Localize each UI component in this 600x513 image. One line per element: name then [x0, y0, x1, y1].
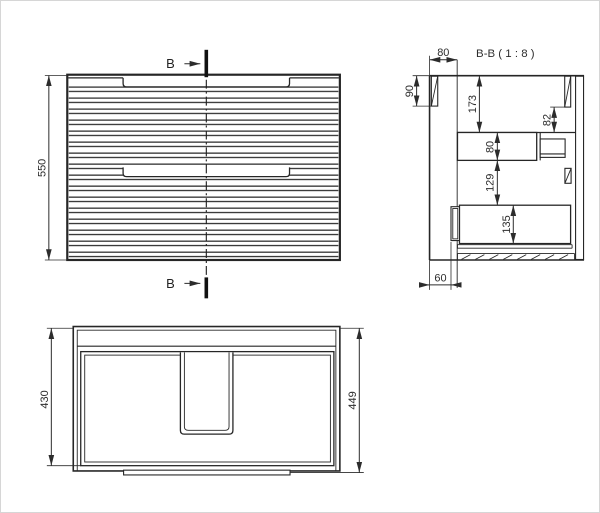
dim-80-top-value: 80: [437, 47, 449, 59]
section-label-b-bottom: B: [166, 276, 175, 291]
upper-drawer-runner-box: [540, 139, 565, 157]
dim-60: 60: [419, 242, 461, 290]
dim-449-value: 449: [347, 391, 359, 409]
dim-135-value: 135: [501, 215, 513, 233]
plan-center-cutout: [180, 352, 233, 434]
section-view: B-B ( 1 : 8 ): [404, 47, 584, 290]
dim-90: 90: [404, 76, 431, 106]
section-title: B-B ( 1 : 8 ): [476, 48, 535, 60]
dim-82: 82: [542, 107, 565, 132]
dim-173-value: 173: [467, 95, 479, 113]
dim-80-shelf-value: 80: [484, 141, 496, 153]
front-view: 550 B B: [36, 50, 340, 299]
dim-129: 129: [484, 160, 497, 205]
section-label-b-top: B: [166, 56, 175, 71]
dim-129-value: 129: [484, 174, 496, 192]
plan-bottom-strip: [124, 470, 290, 475]
dim-550-value: 550: [36, 159, 48, 177]
dim-90-value: 90: [404, 85, 416, 97]
dim-80-top: 80: [430, 47, 458, 76]
technical-drawing-canvas: 550 B B B-B ( 1 : 8 ): [0, 0, 600, 513]
plan-view: 430 449: [39, 327, 364, 475]
dim-550: 550: [36, 76, 67, 260]
base-strip-ticks: [461, 255, 568, 260]
dim-430-value: 430: [39, 390, 51, 408]
drawer-bottom-strip: [457, 245, 572, 249]
dim-60-value: 60: [434, 272, 446, 284]
lower-drawer-box: [459, 205, 570, 243]
base-strip: [457, 254, 574, 260]
dim-82-value: 82: [542, 114, 554, 126]
back-panel-hatched: [576, 76, 584, 259]
vanity-cabinet-drawing: 550 B B B-B ( 1 : 8 ): [1, 1, 599, 512]
dim-173: 173: [467, 76, 479, 133]
